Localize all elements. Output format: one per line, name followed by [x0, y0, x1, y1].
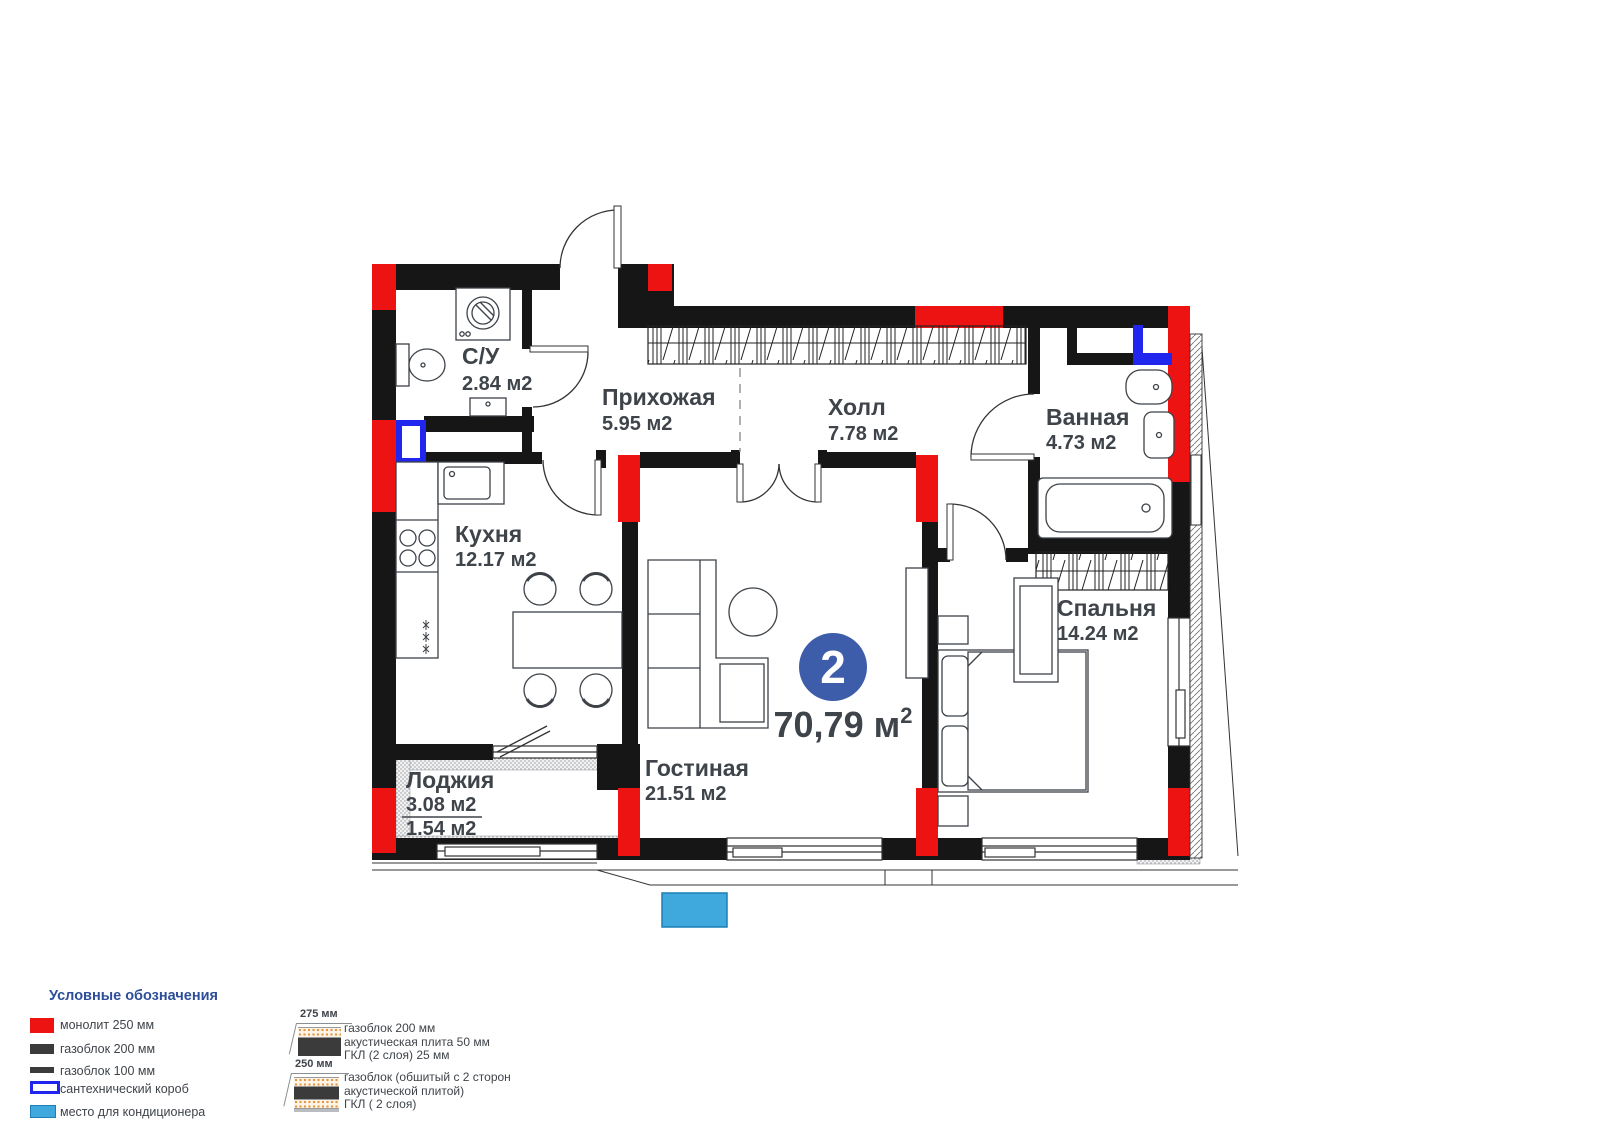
room-living-name: Гостиная [645, 755, 749, 781]
room-living-area: 21.51 м2 [645, 783, 727, 805]
room-kitchen-name: Кухня [455, 521, 522, 547]
nightstand [938, 796, 968, 826]
toilet [396, 344, 445, 386]
room-hall-area: 7.78 м2 [828, 423, 898, 445]
floor-plan-page: С/У 2.84 м2 Прихожая 5.95 м2 Холл 7.78 м… [0, 0, 1600, 1131]
room-su-name: С/У [462, 343, 500, 369]
room-count-number: 2 [820, 641, 846, 693]
tv-unit [906, 568, 928, 678]
wall-250-swatch-icon [294, 1077, 339, 1112]
room-bedroom-area: 14.24 м2 [1057, 623, 1139, 645]
gasblock200-swatch-icon [30, 1044, 54, 1054]
dining-table [513, 573, 622, 707]
room-loggia-label: Лоджия 3.08 м2 1.54 м2 [402, 767, 494, 840]
room-hallway-area: 5.95 м2 [602, 413, 672, 435]
bathtub [1038, 478, 1172, 538]
sofa [648, 560, 768, 728]
room-loggia-area-full: 3.08 м2 [406, 794, 476, 816]
room-hall-name: Холл [828, 394, 886, 420]
bathroom-sink-cabinet [1144, 412, 1174, 458]
ac-place-marker [662, 893, 727, 927]
room-su-area: 2.84 м2 [462, 373, 532, 395]
legend-title: Условные обозначения [49, 988, 218, 1004]
room-hallway-name: Прихожая [602, 384, 715, 410]
floor-plan-drawing: С/У 2.84 м2 Прихожая 5.95 м2 Холл 7.78 м… [0, 0, 1600, 1131]
sanitary-box-swatch-icon [30, 1081, 60, 1094]
wc-sink [470, 398, 506, 416]
room-bathroom-name: Ванная [1046, 404, 1129, 430]
nightstand [938, 616, 968, 644]
bed [938, 650, 1088, 792]
gasblock100-swatch-icon [30, 1067, 54, 1073]
washing-machine [456, 288, 510, 340]
room-loggia-area-half: 1.54 м2 [406, 818, 476, 840]
dresser [1014, 578, 1058, 682]
ac-place-swatch-icon [30, 1105, 56, 1118]
room-kitchen-area: 12.17 м2 [455, 549, 537, 571]
coffee-table [729, 588, 777, 636]
room-bedroom-name: Спальня [1057, 595, 1156, 621]
room-loggia-name: Лоджия [406, 767, 494, 793]
total-area-label: 70,79 м2 [774, 703, 913, 745]
bathroom-sink-oval [1126, 370, 1172, 404]
room-bathroom-area: 4.73 м2 [1046, 432, 1116, 454]
wall-275-swatch-icon [298, 1027, 341, 1056]
apartment-badge: 2 70,79 м2 [774, 633, 913, 745]
monolith-swatch-icon [30, 1018, 54, 1033]
